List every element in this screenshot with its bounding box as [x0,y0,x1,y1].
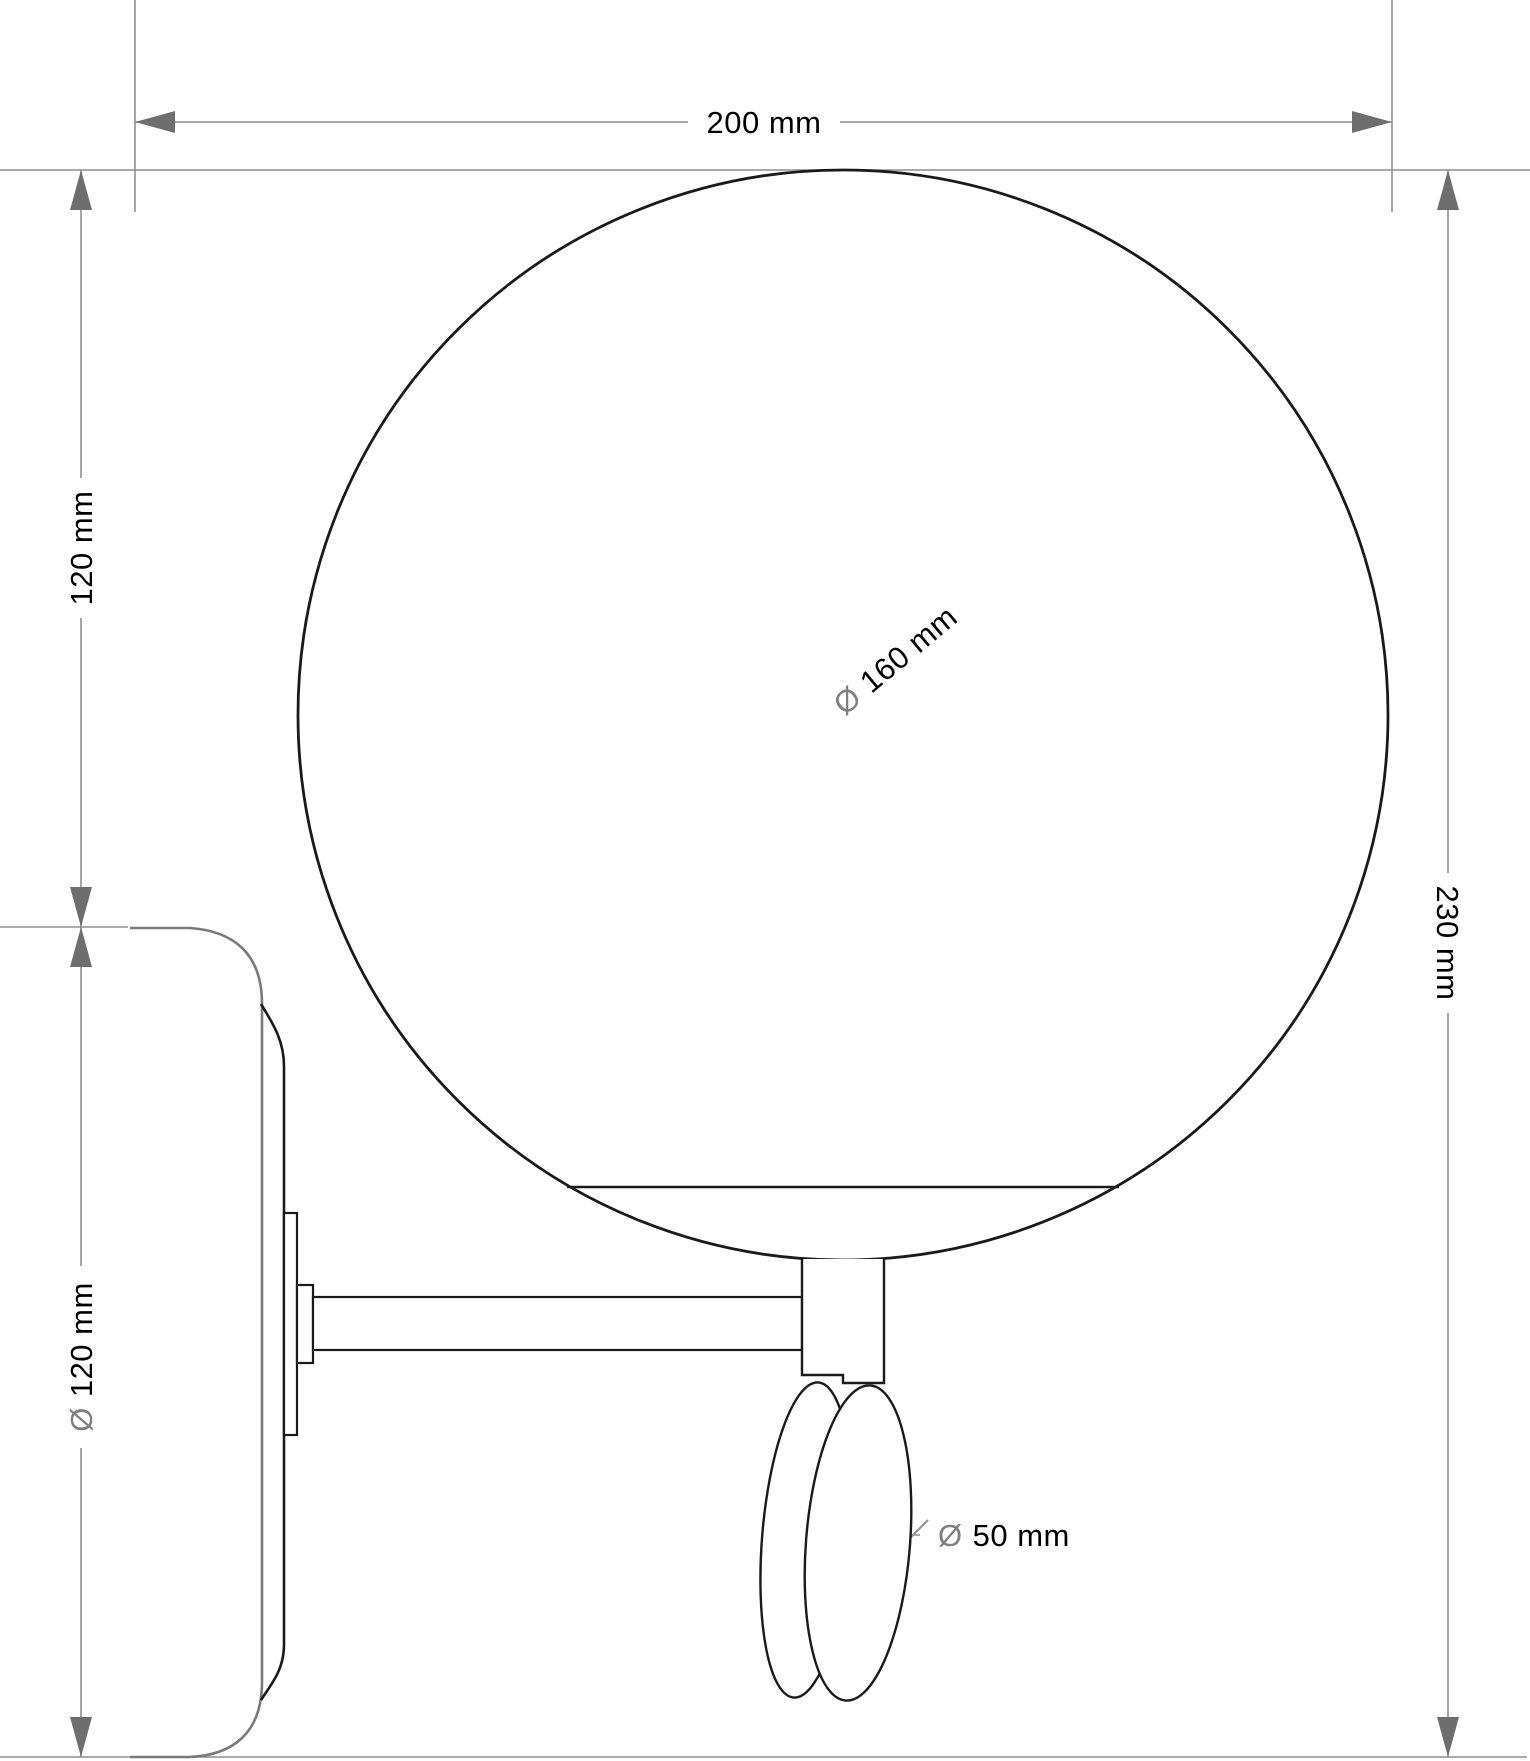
dimension-total-height: 230 mm [1421,873,1475,1013]
lamp-neck [802,1259,884,1383]
dimension-width: 200 mm [688,99,840,143]
plate-diameter-arrow-bottom [70,1717,92,1757]
support-arm [313,1297,802,1350]
wall-lamp-drawing: Ø160 mm 200 mm 120 mm Ø120 mm 230 mm Ø50… [0,0,1530,1761]
wall-plate-outline [130,928,262,1757]
wall-plate-dome-edge [261,1004,284,1700]
technical-drawing-page: Ø160 mm 200 mm 120 mm Ø120 mm 230 mm Ø50… [0,0,1530,1761]
mounting-bracket [284,1213,297,1435]
dimension-grip-diameter: Ø50 mm [938,1518,1070,1553]
width-arrow-left [135,111,175,133]
total-height-label: 230 mm [1430,886,1465,1001]
total-height-arrow-bottom [1437,1717,1459,1757]
upper-height-label: 120 mm [64,491,99,606]
plate-diameter-arrow-top [70,927,92,967]
upper-height-arrow-top [70,170,92,210]
dimension-upper-height: 120 mm [54,478,108,618]
width-arrow-right [1352,111,1392,133]
bracket-flange [297,1285,313,1363]
dimension-plate-diameter: Ø120 mm [54,1266,108,1448]
grip-diameter-label: Ø50 mm [938,1518,1070,1553]
upper-height-arrow-bottom [70,887,92,927]
width-label: 200 mm [707,105,822,140]
total-height-arrow-top [1437,170,1459,210]
plate-diameter-label: Ø120 mm [64,1282,99,1432]
